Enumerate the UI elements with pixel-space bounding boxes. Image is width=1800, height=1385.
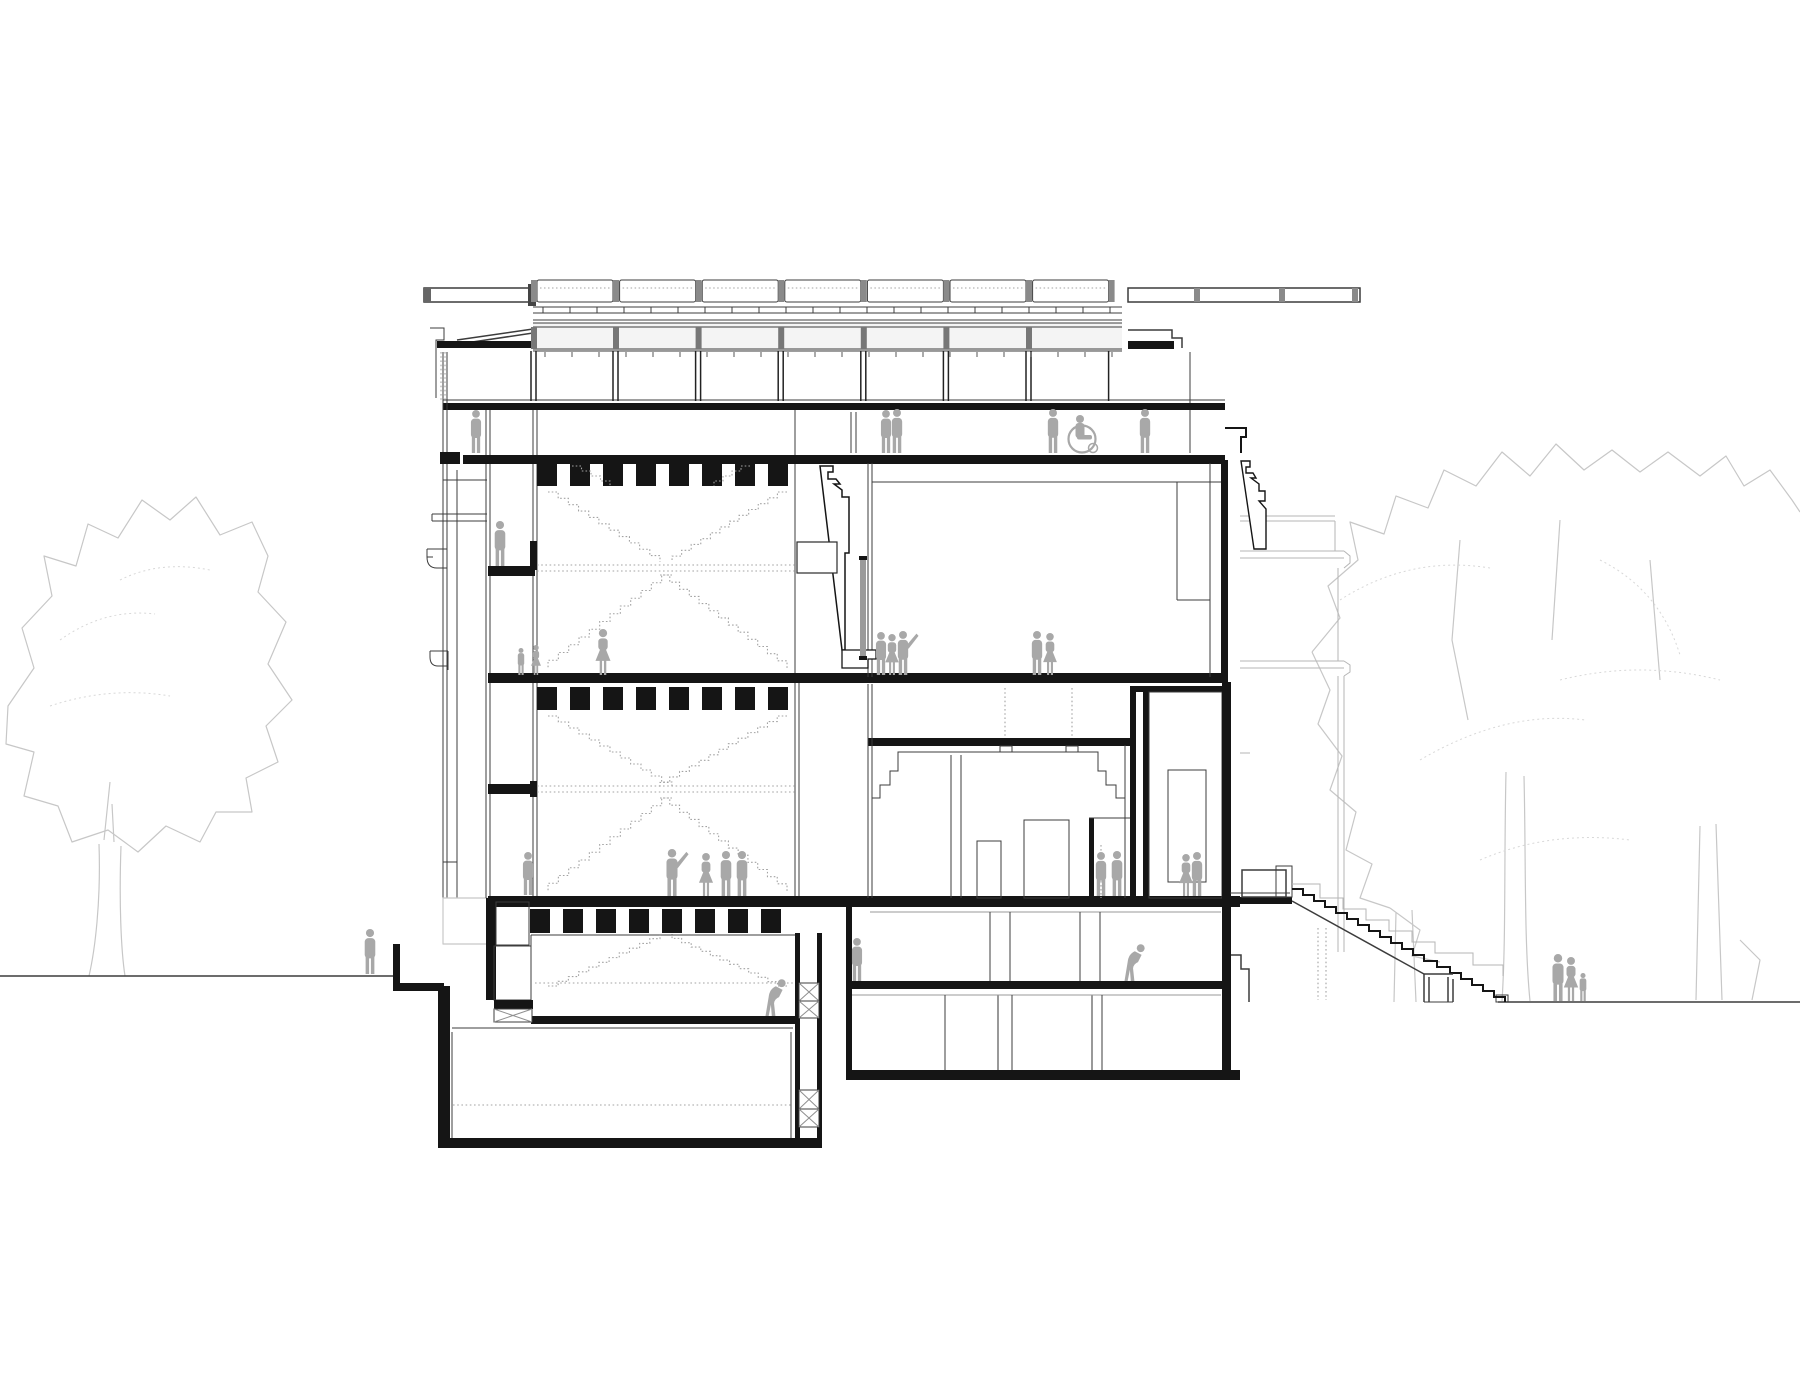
stair-steps-cut — [1292, 889, 1505, 1002]
canopy-end-cap — [424, 288, 431, 302]
tree-right — [1312, 444, 1800, 1002]
right-wall-upper — [1221, 460, 1228, 682]
figure-stand — [1112, 851, 1123, 896]
canopy-beam-left — [424, 288, 532, 302]
right-roof-slab — [1128, 341, 1174, 349]
lower-gallery — [868, 684, 1136, 898]
section-drawing-page — [0, 0, 1800, 1385]
canopy-joint — [1352, 288, 1358, 302]
gallery-ceiling-slab — [868, 738, 1130, 746]
pilaster-cap — [430, 651, 448, 670]
display-case — [1024, 820, 1069, 898]
figure-bend — [1125, 944, 1145, 981]
pier-opening-box — [797, 542, 837, 573]
door-jamb — [1089, 818, 1094, 898]
ceiling-joists — [530, 463, 788, 933]
b2-floor-slab — [848, 1070, 1240, 1080]
top-floor-slab — [463, 455, 1225, 464]
figure-woman — [1043, 633, 1057, 675]
areaway-floor — [393, 983, 444, 991]
figure-wheelchair — [1069, 415, 1098, 453]
landing-slab — [488, 784, 535, 794]
figure-stand — [737, 851, 748, 896]
canopy-beam-right — [1128, 288, 1360, 302]
right-wall-lower — [1222, 682, 1231, 898]
tree-left — [6, 497, 292, 976]
figure-stand — [1140, 409, 1150, 453]
string-course — [432, 514, 487, 521]
right-cornice-molding — [1241, 461, 1266, 549]
upper-gallery — [820, 428, 1266, 682]
lean-to-roof-slab — [437, 341, 533, 348]
b1-floor-slab — [848, 981, 1222, 989]
figure-stand — [495, 521, 506, 566]
ground-floor-slab — [488, 896, 1240, 907]
figure-arm — [898, 631, 919, 675]
clerestory-sill-beam — [443, 403, 1225, 410]
figure-child — [1580, 973, 1587, 1001]
building-section-drawing — [0, 0, 1800, 1385]
figure-stand — [876, 632, 886, 675]
right-parapet — [1225, 428, 1246, 453]
figure-stand — [1192, 852, 1202, 896]
figure-woman — [1179, 854, 1193, 896]
figure-woman — [595, 629, 610, 675]
main-cornice — [427, 546, 447, 568]
exterior-stairs — [1230, 866, 1505, 1002]
figure-stand — [852, 938, 862, 981]
figure-stand — [721, 851, 732, 896]
gallery-end-door — [860, 558, 866, 658]
stair-cheek-wall — [1292, 884, 1503, 976]
display-pedestal — [977, 841, 1001, 898]
coved-ceiling — [872, 752, 1125, 798]
floor-slabs — [463, 455, 1240, 907]
service-room — [496, 902, 529, 945]
elevator-shaft — [1130, 682, 1231, 898]
figure-bend — [766, 979, 786, 1016]
sub-basement-bottom-slab — [438, 1138, 822, 1148]
ground — [0, 944, 1800, 1002]
figure-stand — [1032, 631, 1042, 675]
level3-floor-slab — [488, 673, 1225, 683]
service-room — [494, 946, 531, 1000]
terrace-slab — [1230, 897, 1292, 904]
understair-opening — [1424, 974, 1453, 1002]
figure-stand — [881, 410, 891, 453]
basement-right — [846, 898, 1249, 1080]
figure-stand — [523, 852, 533, 895]
figure-woman — [885, 634, 898, 675]
figure-woman — [699, 853, 713, 896]
figure-arm — [666, 849, 688, 896]
areaway-box — [443, 898, 487, 944]
basement-left — [438, 902, 822, 1148]
landing-slab — [488, 566, 535, 576]
figure-stand — [1552, 954, 1563, 1001]
basement-floor-slab — [531, 1016, 795, 1024]
balcony-parapet — [440, 452, 460, 464]
canopy-joint — [1194, 288, 1200, 302]
figure-woman — [1564, 957, 1578, 1001]
figure-stand — [1048, 409, 1058, 453]
figure-stand — [518, 648, 524, 675]
sub-basement-left-wall — [438, 986, 450, 1148]
canopy-joint — [1279, 288, 1285, 302]
overlays — [797, 542, 837, 573]
figure-stand — [892, 409, 902, 453]
figure-stand — [471, 410, 481, 453]
figure-stand — [365, 929, 376, 974]
